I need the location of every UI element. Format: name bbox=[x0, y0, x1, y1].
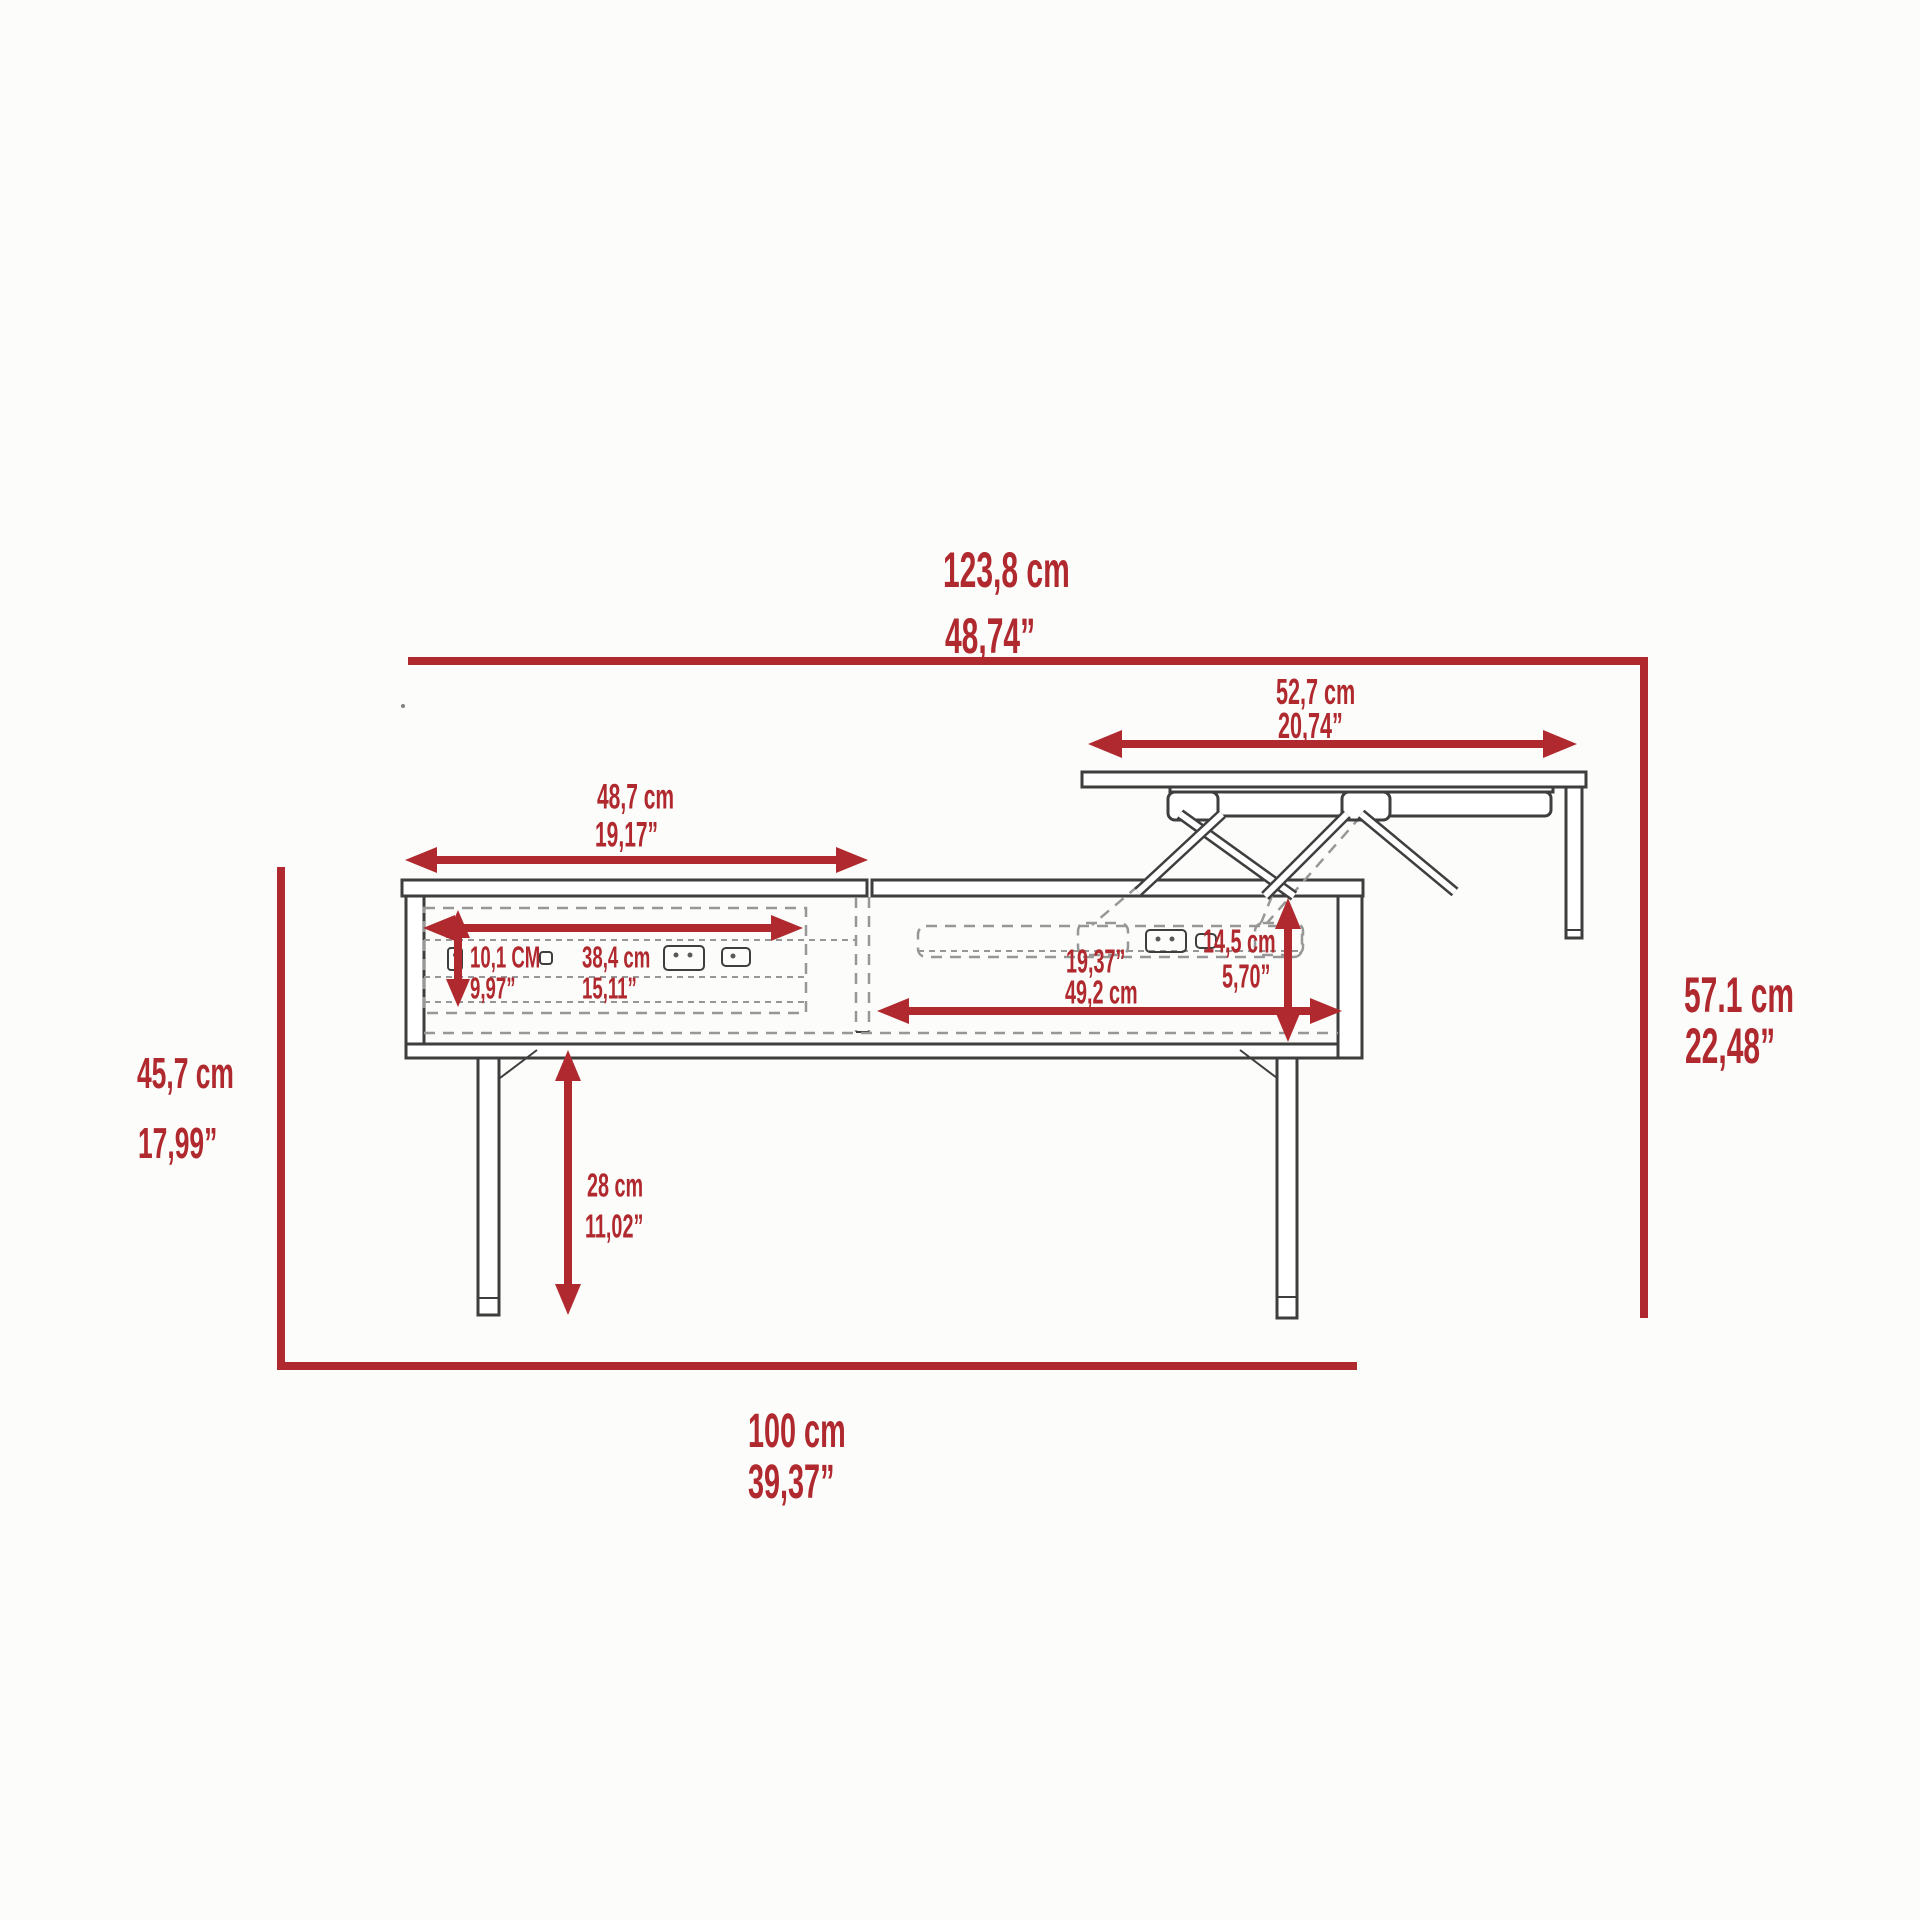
left-side-panel bbox=[406, 896, 424, 1045]
dim-drawer-width-in: 15,11” bbox=[582, 973, 637, 1004]
slide-clip bbox=[722, 948, 750, 966]
dim-lifted-height-cm: 57.1 cm bbox=[1684, 970, 1794, 1020]
dim-drawer-height-in: 9,97” bbox=[470, 973, 516, 1004]
table-line-drawing bbox=[0, 0, 1920, 1920]
front-right-leg bbox=[1277, 1058, 1297, 1318]
dim-drawer-height-cm: 10,1 CM bbox=[470, 942, 540, 973]
slide-clip bbox=[664, 946, 704, 970]
dim-drawer-width-cm: 38,4 cm bbox=[582, 942, 650, 973]
hidden-edges-dashed bbox=[424, 795, 1384, 1033]
tabletop-left-slab bbox=[402, 880, 867, 896]
dim-left-top-width-in: 19,17” bbox=[595, 818, 658, 853]
dim-leg-height-cm: 28 cm bbox=[587, 1169, 643, 1202]
slide-clip bbox=[540, 952, 552, 964]
lift-top-slab bbox=[1082, 772, 1586, 787]
dimension-diagram: 123,8 cm 48,74” 52,7 cm 20,74” 48,7 cm 1… bbox=[0, 0, 1920, 1920]
dim-table-depth-cm: 100 cm bbox=[748, 1408, 846, 1456]
dim-lifted-height-in: 22,48” bbox=[1685, 1021, 1775, 1071]
dim-left-top-width-cm: 48,7 cm bbox=[597, 780, 674, 815]
dim-table-depth-in: 39,37” bbox=[748, 1459, 834, 1507]
right-side-panel bbox=[1338, 896, 1362, 1058]
slide-clip bbox=[1146, 930, 1186, 952]
scissor-housing-left bbox=[1168, 792, 1218, 820]
lift-top-assembly bbox=[1082, 772, 1586, 938]
dim-lift-rise-in: 5,70” bbox=[1222, 960, 1270, 993]
dim-table-height-in: 17,99” bbox=[138, 1122, 217, 1166]
dim-overall-width-cm: 123,8 cm bbox=[943, 545, 1070, 595]
dim-lift-rise-cm: 14,5 cm bbox=[1203, 925, 1276, 958]
dim-lift-top-width-in: 20,74” bbox=[1278, 708, 1343, 744]
lift-rise-arrow bbox=[1275, 898, 1301, 1042]
dim-right-compartment-cm: 49,2 cm bbox=[1065, 976, 1138, 1009]
leg-height-arrow bbox=[555, 1050, 581, 1315]
dim-overall-width-in: 48,74” bbox=[945, 611, 1035, 661]
lift-top-leg bbox=[1566, 787, 1582, 938]
bottom-slab bbox=[406, 1044, 1340, 1058]
drawer-width-arrow bbox=[423, 915, 803, 941]
front-left-leg bbox=[478, 1058, 499, 1315]
dim-table-height-cm: 45,7 cm bbox=[137, 1052, 234, 1096]
dim-leg-height-in: 11,02” bbox=[585, 1210, 643, 1243]
stray-dot bbox=[401, 704, 405, 708]
